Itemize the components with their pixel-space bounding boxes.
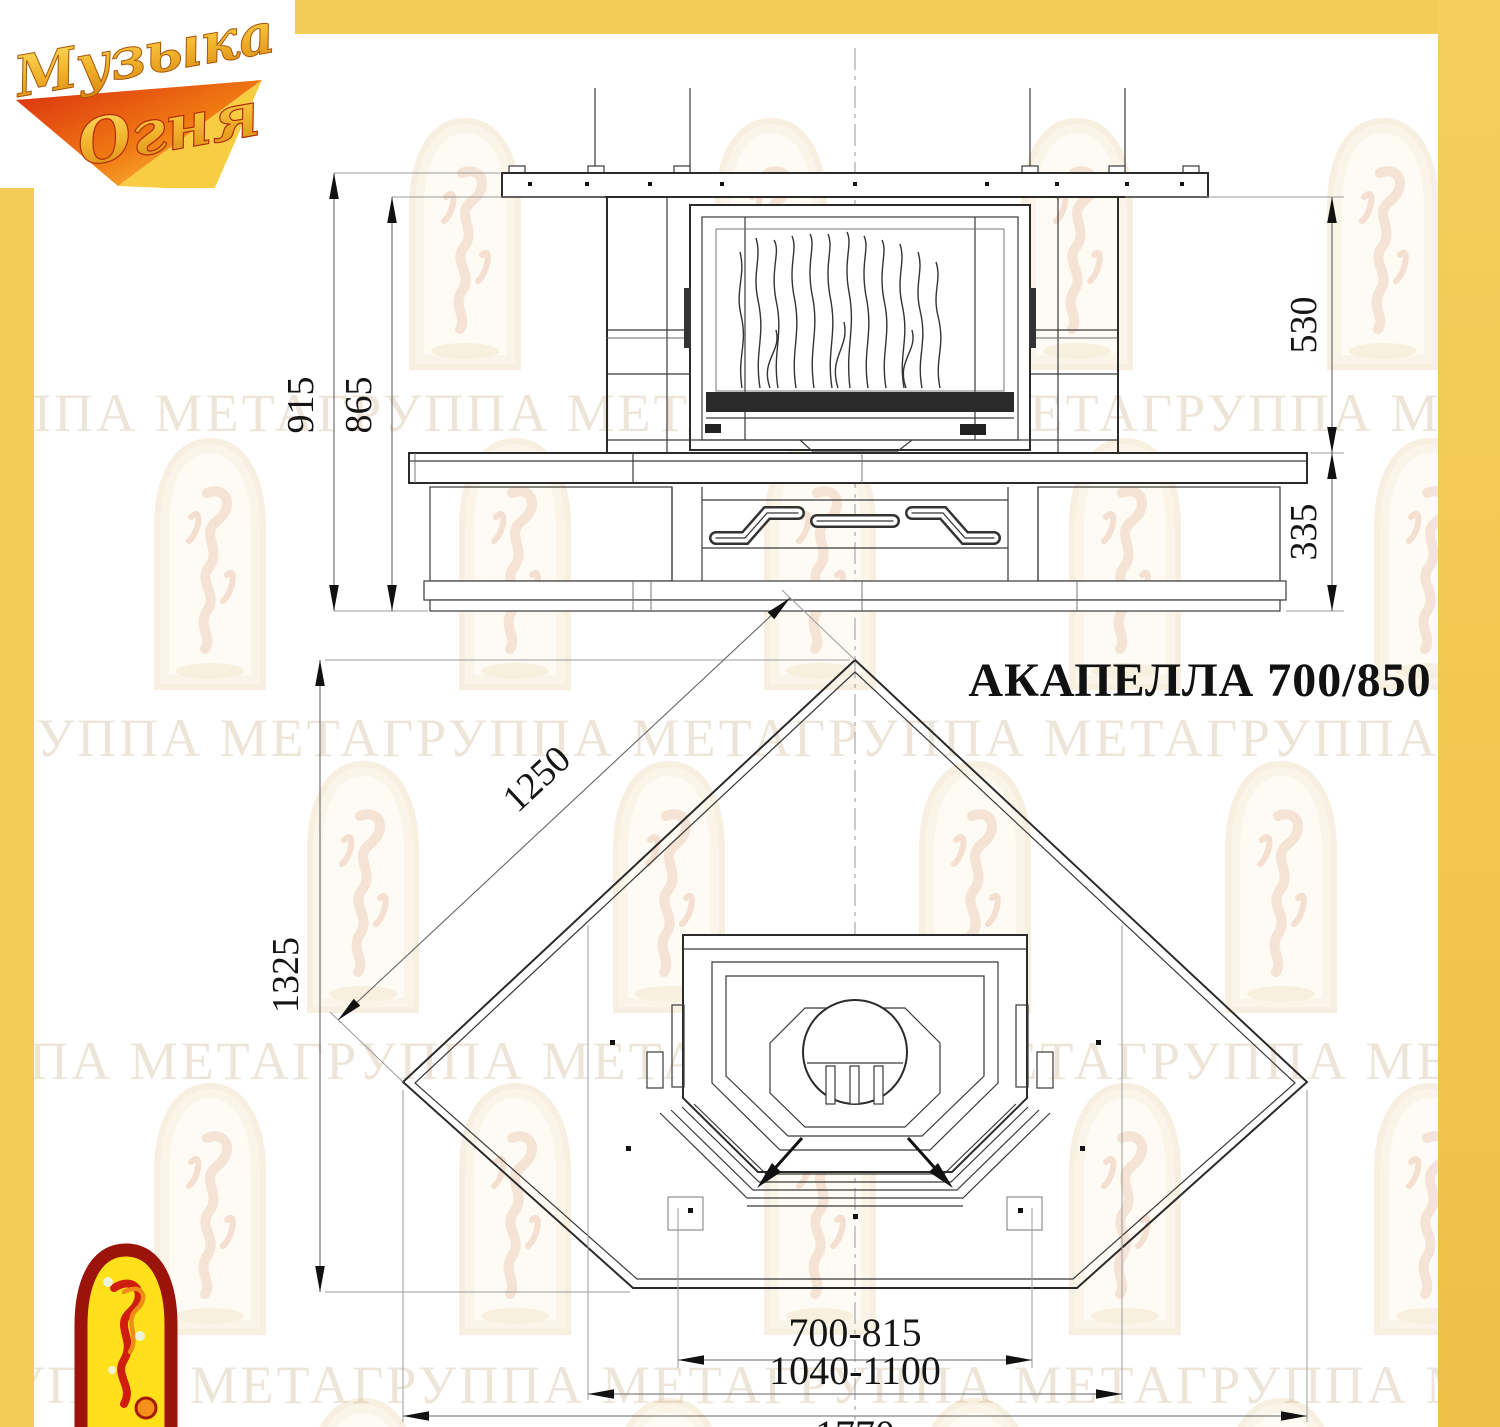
dim-base-height: 335 <box>1283 504 1325 561</box>
mantel-shelf <box>409 453 1307 483</box>
dim-total-height: 915 <box>280 377 322 434</box>
page-border-right <box>1438 0 1500 1427</box>
dim-body-height: 865 <box>338 377 380 434</box>
grate-bar <box>706 392 1014 412</box>
plinth <box>424 581 1286 600</box>
front-view <box>409 88 1307 611</box>
technical-drawing: 915 865 530 335 1250 1325 700-815 1040-1… <box>0 0 1500 1427</box>
brick-panel-left <box>430 487 672 581</box>
corner-emblem <box>68 1240 186 1427</box>
dim-firebox-height: 530 <box>1283 297 1325 354</box>
emblem-dot <box>136 1398 156 1418</box>
page-border-left <box>0 186 34 1427</box>
drawing-title: АКАПЕЛЛА 700/850 <box>968 654 1431 707</box>
dim-plan-depth: 1325 <box>265 937 307 1013</box>
dim-total-width: 1770 <box>815 1412 895 1427</box>
dim-plan-side: 1250 <box>495 738 579 821</box>
page: ГРУППА МЕТАГРУППА МЕТАГРУППА МЕТАГРУППА … <box>0 0 1500 1427</box>
page-border-top <box>295 0 1500 34</box>
brand-logo: Музыка Огня <box>0 0 295 188</box>
dim-opening-width: 1040-1100 <box>769 1348 941 1393</box>
brick-panel-right <box>1038 487 1280 581</box>
